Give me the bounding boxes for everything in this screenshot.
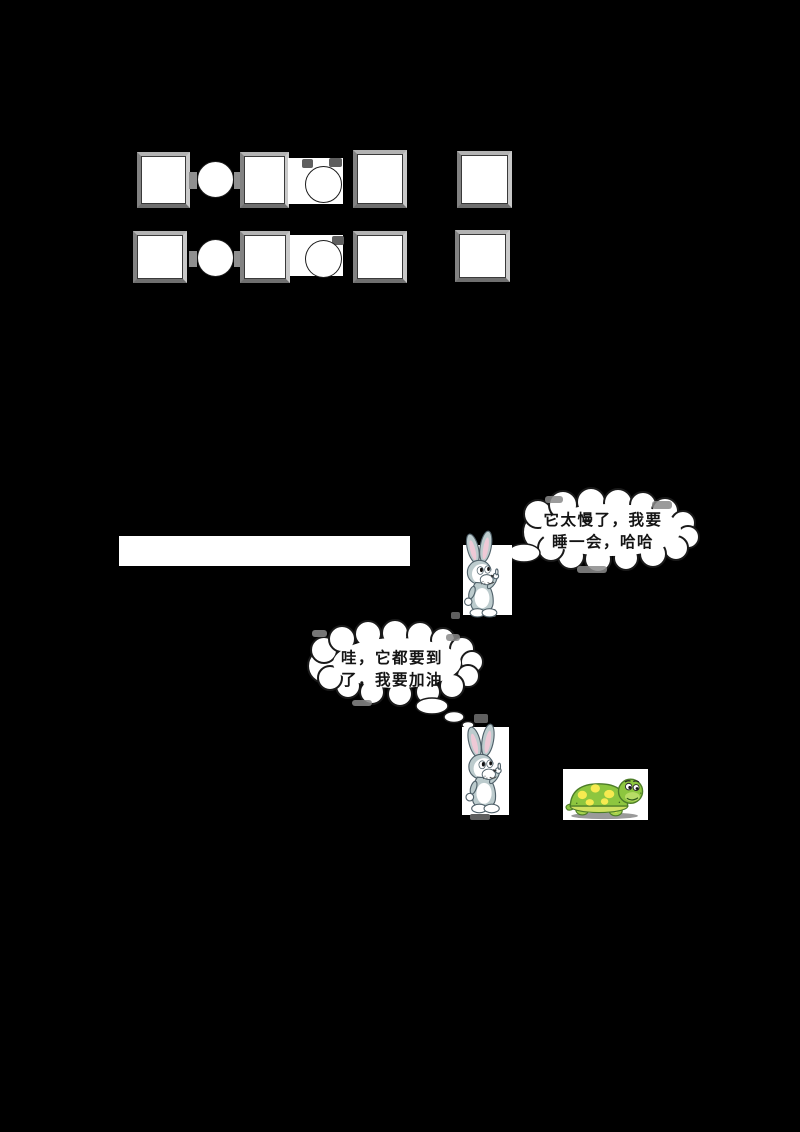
artifact-mark	[474, 714, 488, 723]
bubble-1-line-1: 它太慢了，我要	[523, 510, 683, 532]
artifact-mark	[446, 634, 460, 641]
artifact-mark	[189, 251, 197, 267]
answer-square	[137, 152, 190, 208]
answer-square	[353, 150, 407, 208]
answer-square	[457, 151, 512, 208]
operator-circle	[305, 240, 342, 278]
white-bar	[119, 536, 410, 566]
artifact-mark	[312, 630, 327, 637]
bubble-1-text: 它太慢了，我要 睡一会，哈哈	[523, 510, 683, 554]
answer-square	[240, 231, 290, 283]
answer-square	[455, 230, 510, 282]
bubble-2-line-2: 了，我要加油	[322, 670, 462, 692]
operator-circle	[197, 239, 234, 277]
bubble-1-line-2: 睡一会，哈哈	[523, 532, 683, 554]
answer-square	[240, 152, 289, 208]
artifact-mark	[545, 496, 563, 503]
operator-circle	[197, 161, 234, 198]
artifact-mark	[577, 566, 607, 573]
artifact-mark	[189, 172, 197, 189]
rabbit-icon	[456, 723, 514, 818]
bubble-2-text: 哇，它都要到 了，我要加油	[322, 648, 462, 692]
artifact-mark	[352, 700, 372, 706]
artifact-mark	[302, 159, 313, 168]
bubble-2-line-1: 哇，它都要到	[322, 648, 462, 670]
answer-square	[133, 231, 187, 283]
rabbit-icon	[454, 530, 512, 622]
worksheet-page: 它太慢了，我要 睡一会，哈哈 哇，它都要到 了，我要加油	[0, 0, 800, 1132]
artifact-mark	[652, 501, 672, 509]
answer-square	[353, 231, 407, 283]
artifact-mark	[329, 158, 342, 167]
operator-circle	[305, 166, 342, 203]
turtle-icon	[563, 769, 648, 820]
